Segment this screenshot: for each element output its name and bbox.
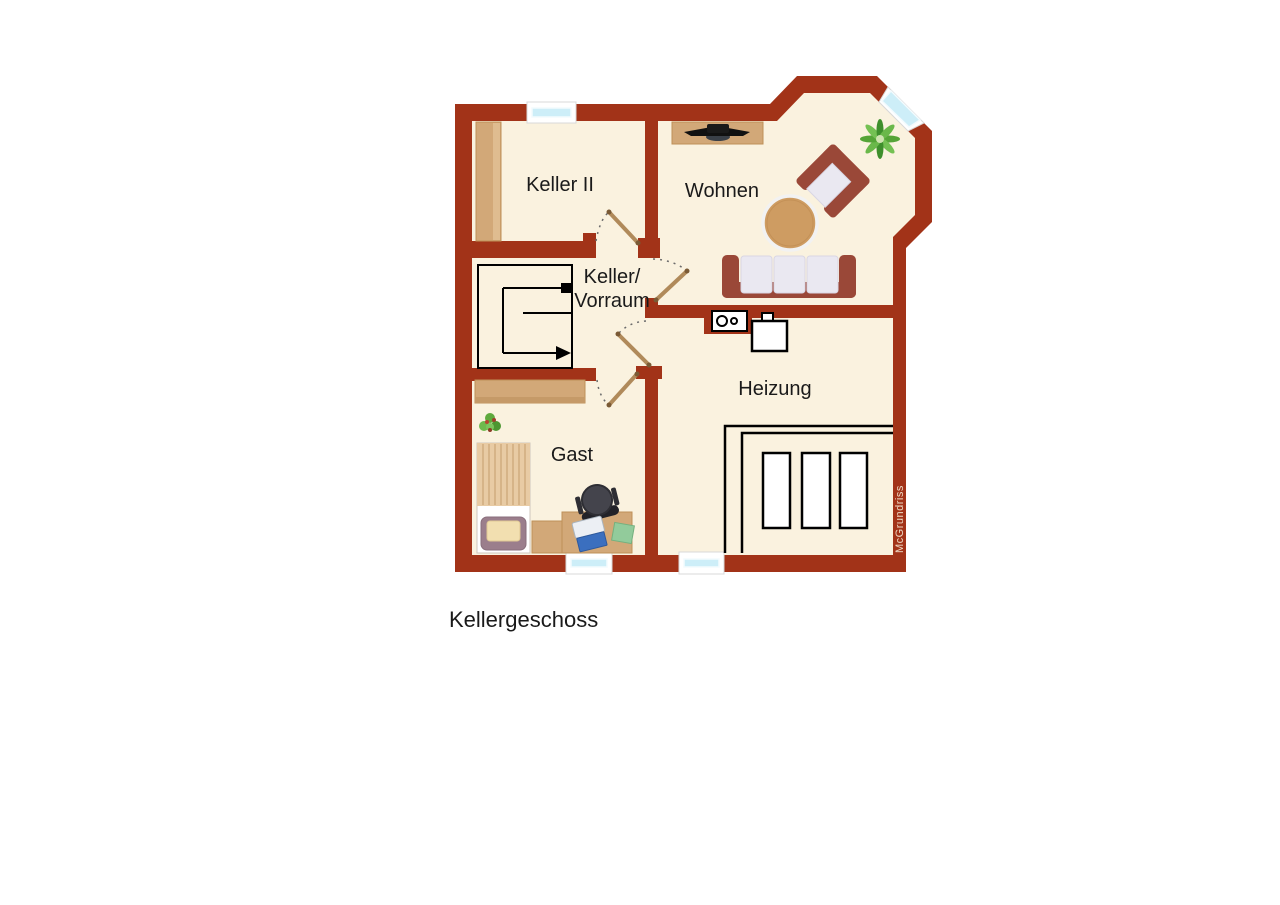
wall-gast-heizung (645, 366, 658, 555)
floorplan-svg: Keller II Wohnen Keller/ Vorraum Heizung… (0, 0, 1280, 905)
sofa (722, 255, 856, 298)
stairs-start-marker (561, 283, 571, 293)
keller2-cabinet (476, 122, 501, 241)
window-top (527, 102, 576, 123)
room-label-gast: Gast (551, 444, 594, 466)
wall-vorraum-gast (472, 368, 596, 381)
floorplan-canvas: Keller II Wohnen Keller/ Vorraum Heizung… (0, 0, 1280, 905)
window-bottom-gast (566, 552, 612, 574)
wall-foot (638, 238, 660, 258)
wall-notch (583, 233, 596, 242)
watermark-text: McGrundriss (894, 485, 906, 553)
window-bottom-heizung (679, 552, 724, 574)
plant-large (860, 119, 900, 159)
meter-box (712, 311, 747, 331)
room-label-keller2: Keller II (526, 174, 594, 196)
notepad (612, 522, 635, 543)
room-label-wohnen: Wohnen (685, 180, 759, 202)
room-label-heizung: Heizung (738, 378, 811, 400)
coffee-table (763, 196, 817, 250)
sideboard-tv (672, 122, 763, 144)
plan-title: Kellergeschoss (449, 607, 598, 632)
room-label-vorraum-line2: Vorraum (574, 290, 650, 312)
wall-keller2-wohnen (645, 121, 658, 238)
room-label-vorraum-line1: Keller/ (584, 266, 641, 288)
bed (477, 443, 530, 553)
nightstand (532, 521, 563, 553)
gast-sideboard (475, 380, 585, 403)
wall-keller2-vorraum (472, 241, 596, 258)
